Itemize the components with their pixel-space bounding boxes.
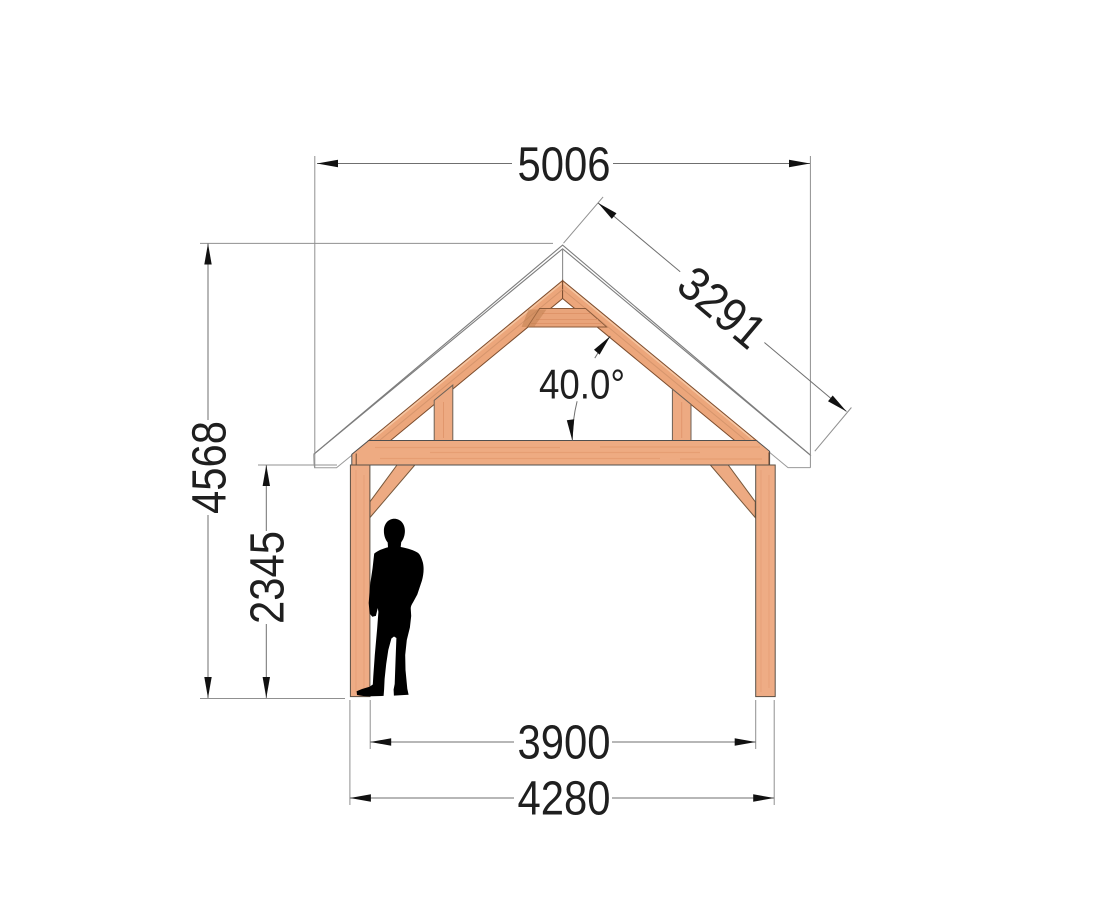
svg-text:40.0°: 40.0° <box>539 361 625 408</box>
svg-text:3900: 3900 <box>518 717 611 770</box>
svg-text:4568: 4568 <box>184 421 237 514</box>
svg-text:5006: 5006 <box>518 139 611 192</box>
svg-text:2345: 2345 <box>242 531 295 624</box>
svg-text:4280: 4280 <box>518 773 611 826</box>
